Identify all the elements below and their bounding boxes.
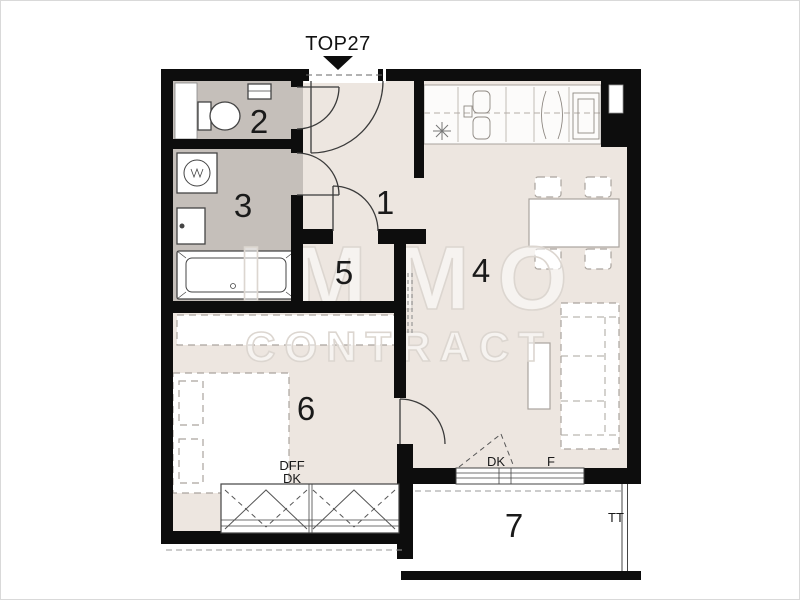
floor-plan-page: IMMO CONTRACT TOP27 xyxy=(0,0,800,600)
room-6-label: 6 xyxy=(297,390,315,427)
entrance: TOP27 xyxy=(304,33,386,83)
washing-machine-icon xyxy=(177,153,217,193)
dining-chair xyxy=(585,177,611,197)
shaft xyxy=(175,83,197,139)
wc-sink-icon xyxy=(248,84,271,99)
room-3-label: 3 xyxy=(234,187,252,224)
room-4-label: 4 xyxy=(472,252,490,289)
balcony-window-label: F xyxy=(547,454,555,469)
bedroom-window-label-line2: DK xyxy=(283,471,301,486)
room-7-label: 7 xyxy=(505,507,523,544)
unit-label: TOP27 xyxy=(305,33,371,55)
toilet-icon xyxy=(198,102,240,130)
bath-sink-icon xyxy=(177,208,205,244)
room-5-label: 5 xyxy=(335,254,353,291)
dining-chair xyxy=(535,177,561,197)
kitchen-counter xyxy=(424,85,601,144)
balcony-door-label: DK xyxy=(487,454,505,469)
shaft xyxy=(609,85,623,113)
room-2-label: 2 xyxy=(250,103,268,140)
pillow xyxy=(179,381,203,425)
terrace-label: TT xyxy=(608,510,624,525)
pillow xyxy=(179,439,203,483)
room-1-label: 1 xyxy=(376,184,394,221)
floor-plan: IMMO CONTRACT TOP27 xyxy=(1,1,800,600)
bedroom-window xyxy=(221,484,399,533)
